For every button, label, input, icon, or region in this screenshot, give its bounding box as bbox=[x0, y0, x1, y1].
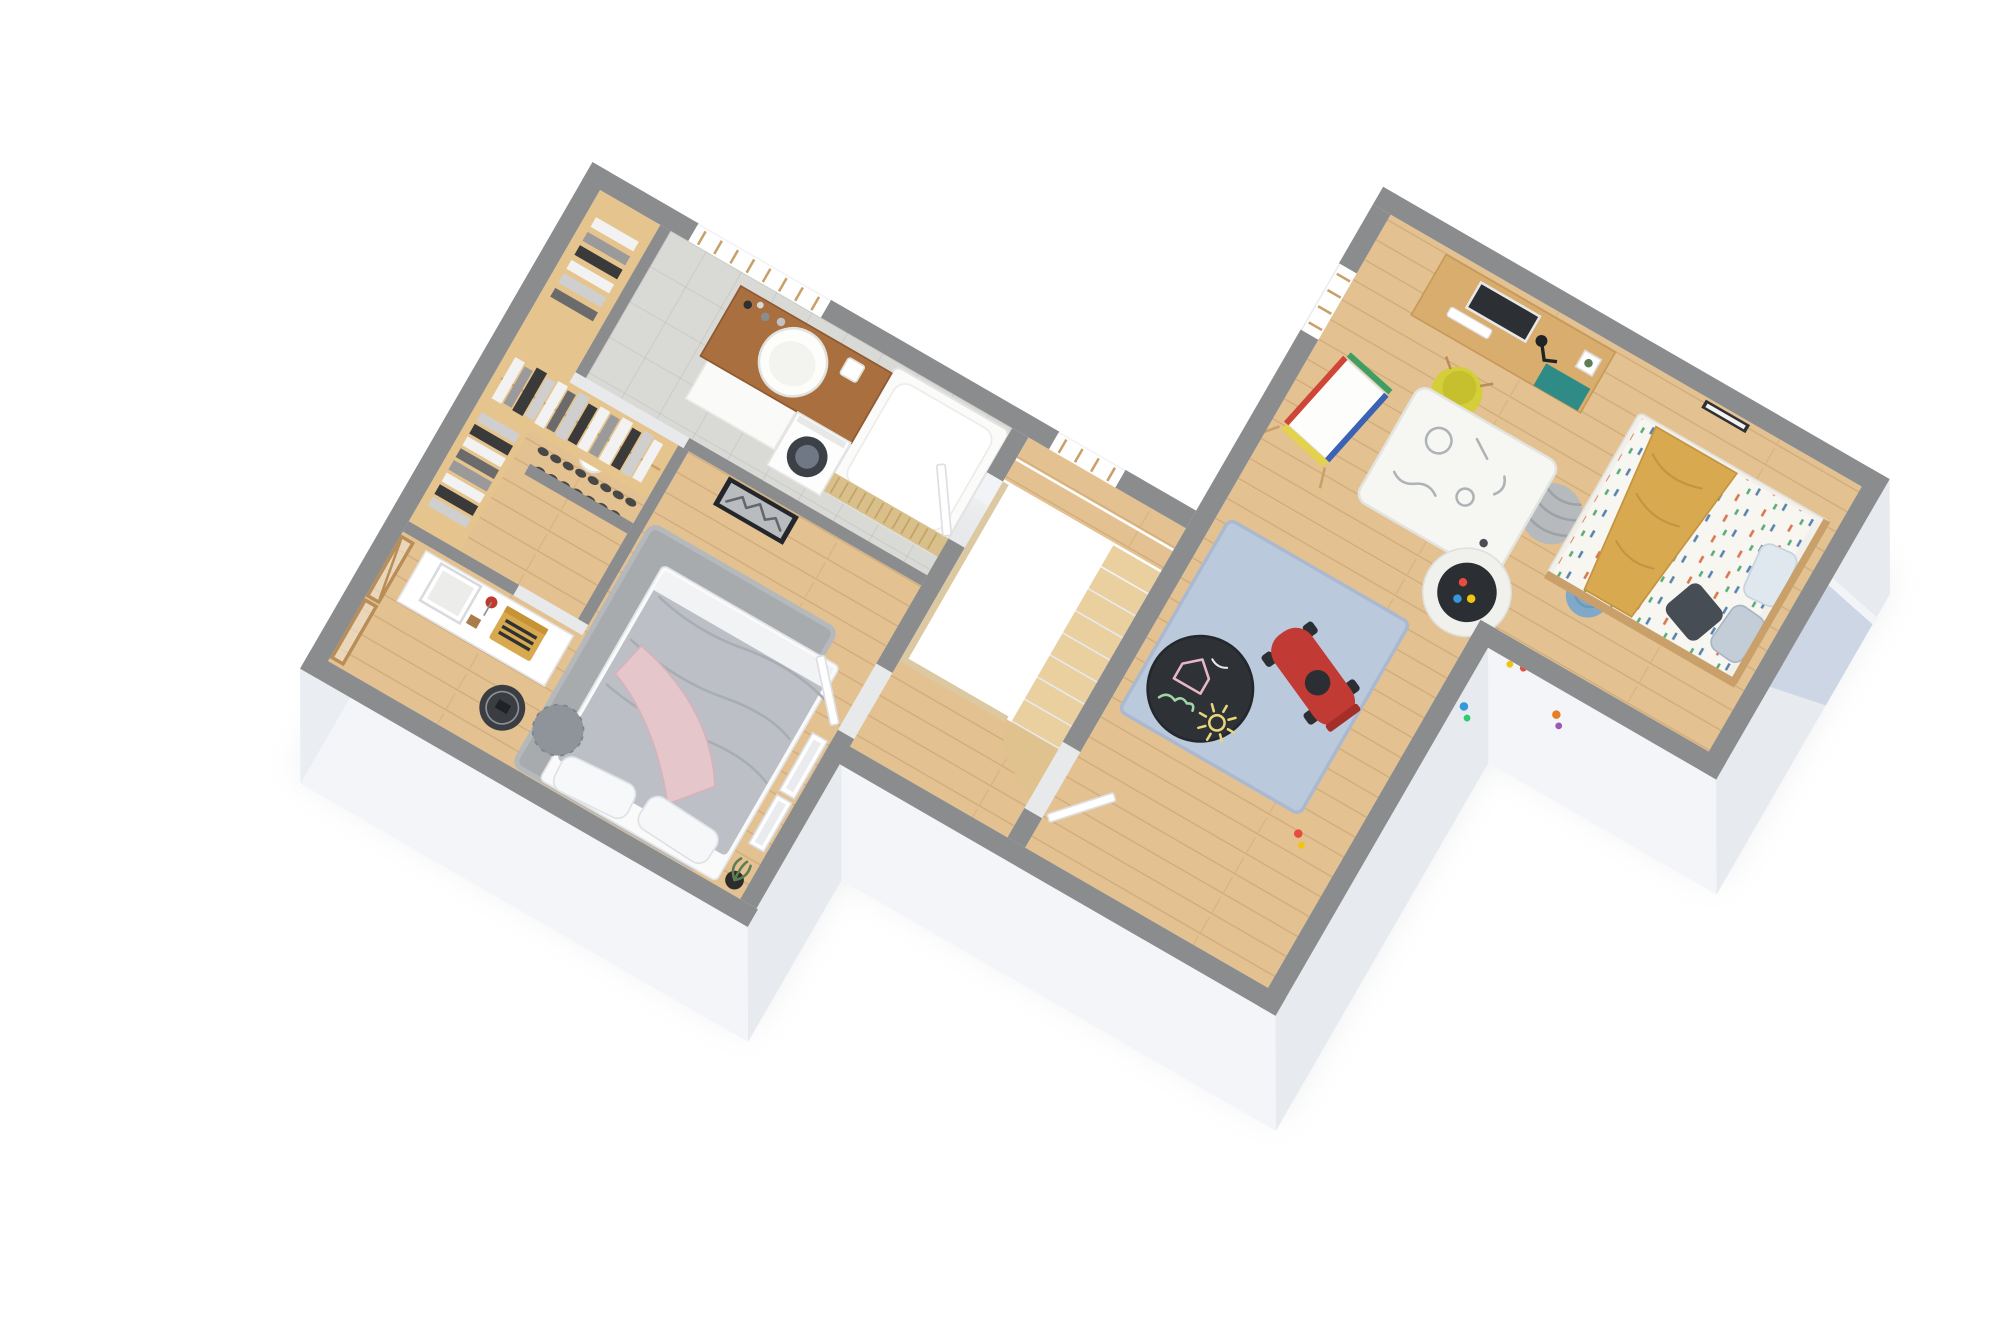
floorplan-3d-render bbox=[0, 0, 2000, 1333]
floorplan-render-stage bbox=[0, 0, 2000, 1333]
